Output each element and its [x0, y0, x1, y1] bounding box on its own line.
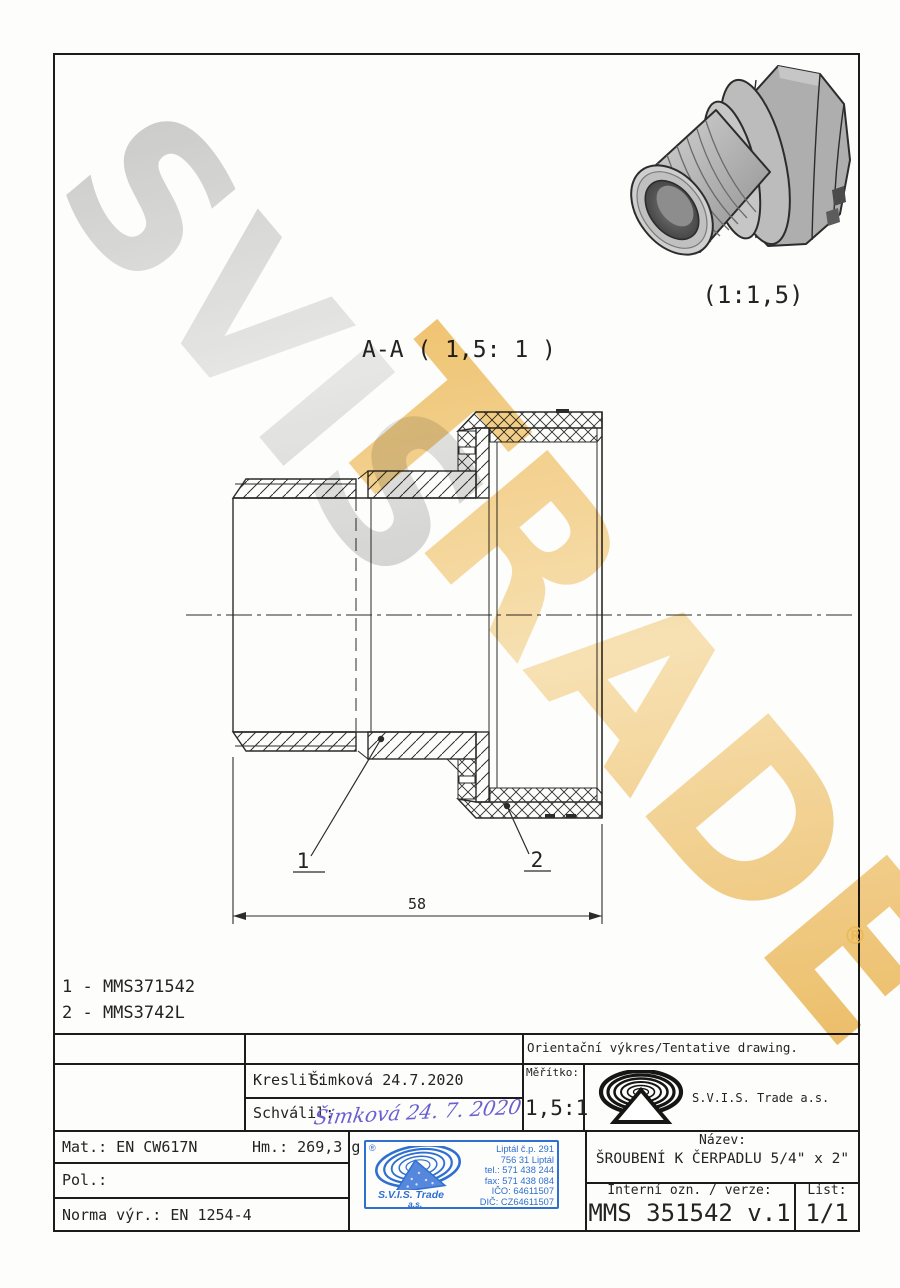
list-label: List: — [794, 1184, 860, 1198]
list-value: 1/1 — [794, 1200, 860, 1226]
company-name: S.V.I.S. Trade a.s. — [692, 1092, 829, 1105]
norm-field: Norma výr.: EN 1254-4 — [62, 1207, 252, 1224]
stamp-address-line: Liptál č.p. 291 — [480, 1144, 554, 1155]
part-list-item-1: 1 - MMS371542 — [62, 978, 195, 997]
balloon-1-label: 1 — [297, 849, 310, 873]
interni-value: MMS 351542 v.1 — [585, 1200, 794, 1226]
meritko-label: Měřítko: — [526, 1067, 579, 1079]
iso-view — [628, 52, 858, 292]
section-title: A-A ( 1,5: 1 ) — [362, 338, 556, 363]
stamp-address-line: IČO: 64611507 — [480, 1186, 554, 1197]
iso-scale-label: (1:1,5) — [653, 282, 853, 308]
balloon-2-label: 2 — [531, 848, 544, 872]
meritko-value: 1,5:1 — [525, 1097, 588, 1120]
company-logo — [598, 1070, 684, 1124]
kreslil-value: Šimková 24.7.2020 — [310, 1072, 464, 1089]
position-field: Pol.: — [62, 1172, 107, 1189]
stamp-address-line: 756 31 Liptál — [480, 1155, 554, 1166]
drawing-sheet: 1 2 58 — [0, 0, 900, 1288]
stamp-company-suffix: a.s. — [408, 1199, 422, 1209]
tentative-note: Orientační výkres/Tentative drawing. — [527, 1041, 798, 1055]
mass-field: Hm.: 269,3 g — [252, 1139, 360, 1156]
stamp-address: Liptál č.p. 291 756 31 Liptál tel.: 571 … — [480, 1144, 554, 1207]
stamp-logo — [372, 1146, 464, 1190]
material-field: Mat.: EN CW617N — [62, 1139, 197, 1156]
watermark-registered-mark: ® — [843, 922, 867, 950]
company-stamp: ® S.V.I.S. Trade a.s. Liptál č.p. 291 75… — [364, 1140, 559, 1209]
nazev-value: ŠROUBENÍ K ČERPADLU 5/4" x 2" — [585, 1152, 860, 1168]
stamp-address-line: fax: 571 438 084 — [480, 1176, 554, 1187]
nazev-label: Název: — [585, 1134, 860, 1148]
stamp-address-line: DIČ: CZ64611507 — [480, 1197, 554, 1208]
dimension-58-value: 58 — [408, 895, 426, 913]
part-list-item-2: 2 - MMS3742L — [62, 1004, 185, 1023]
stamp-address-line: tel.: 571 438 244 — [480, 1165, 554, 1176]
interni-label: Interní ozn. / verze: — [585, 1184, 794, 1198]
